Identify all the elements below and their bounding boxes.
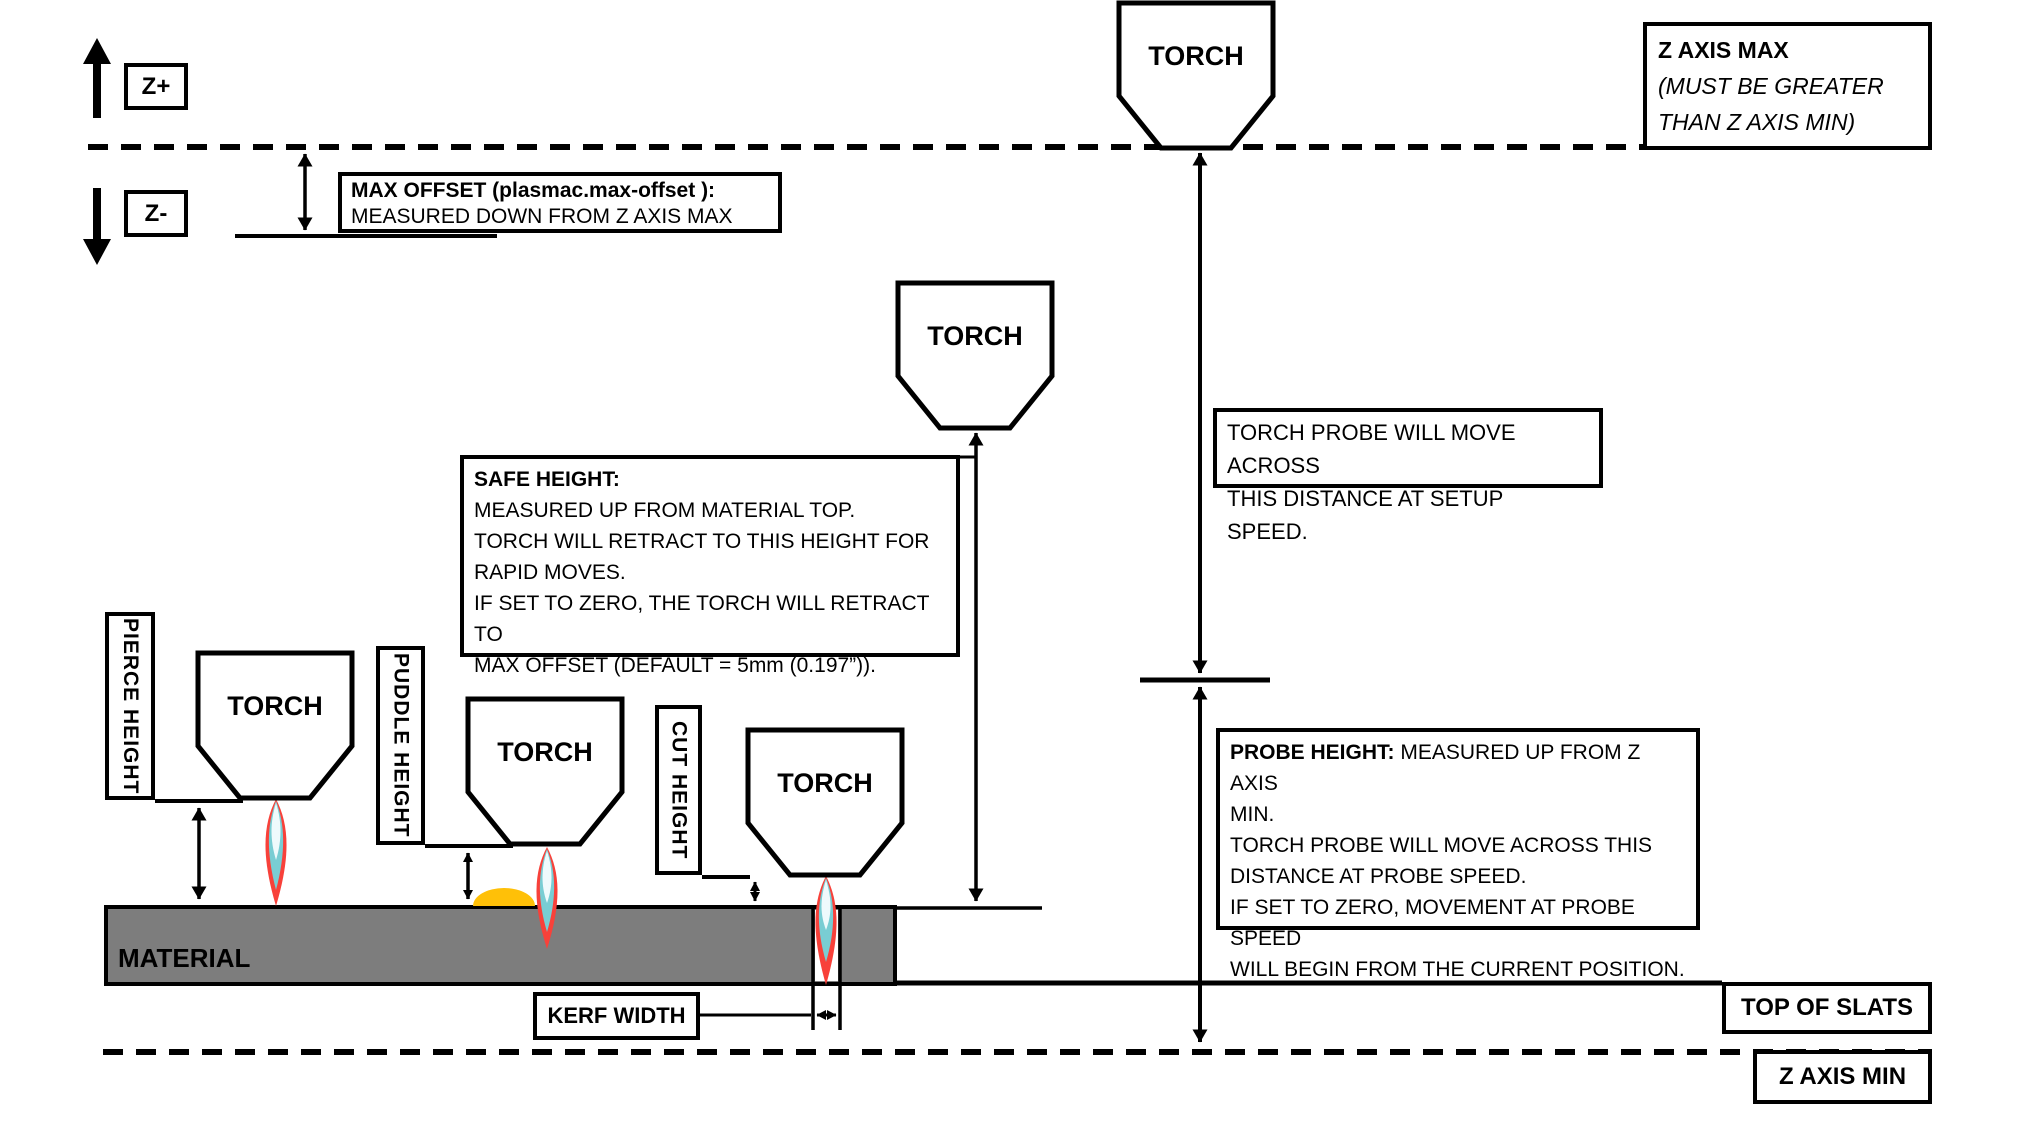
probe-height-box: PROBE HEIGHT: MEASURED UP FROM Z AXIS MI…: [1216, 728, 1700, 930]
kerf-width-box: KERF WIDTH: [533, 992, 700, 1040]
torch-label: TORCH: [468, 737, 622, 768]
torch-flame-icon: [265, 799, 286, 906]
max-offset-box: MAX OFFSET (plasmac.max-offset ): MEASUR…: [338, 172, 782, 233]
safe-height-box: SAFE HEIGHT: MEASURED UP FROM MATERIAL T…: [460, 455, 960, 657]
diagram-geometry: [0, 0, 2038, 1145]
max-offset-line: MEASURED DOWN FROM Z AXIS MAX: [351, 204, 769, 230]
cut-height-box: CUT HEIGHT: [655, 705, 702, 875]
probe-height-line: TORCH PROBE WILL MOVE ACROSS THIS: [1230, 830, 1686, 861]
probe-height-line: DISTANCE AT PROBE SPEED.: [1230, 861, 1686, 892]
z-axis-max-title: Z AXIS MAX: [1658, 32, 1917, 68]
safe-height-line: IF SET TO ZERO, THE TORCH WILL RETRACT T…: [474, 588, 946, 650]
z-axis-max-box: Z AXIS MAX (MUST BE GREATER THAN Z AXIS …: [1643, 22, 1932, 150]
top-of-slats-box: TOP OF SLATS: [1722, 982, 1932, 1034]
torch-probe-line: THIS DISTANCE AT SETUP SPEED.: [1227, 482, 1589, 548]
torch-label: TORCH: [198, 691, 352, 722]
safe-height-line: TORCH WILL RETRACT TO THIS HEIGHT FOR: [474, 526, 946, 557]
safe-height-line: MAX OFFSET (DEFAULT = 5mm (0.197”)).: [474, 650, 946, 681]
puddle-height-box: PUDDLE HEIGHT: [376, 646, 425, 845]
z-plus-box: Z+: [124, 63, 188, 110]
torch-body-safe: [898, 283, 1052, 428]
probe-height-line: WILL BEGIN FROM THE CURRENT POSITION.: [1230, 954, 1686, 985]
safe-height-line: MEASURED UP FROM MATERIAL TOP.: [474, 495, 946, 526]
z-axis-max-line: THAN Z AXIS MIN): [1658, 104, 1917, 140]
torch-body-cut: [748, 730, 902, 875]
z-axis-min-box: Z AXIS MIN: [1753, 1050, 1932, 1104]
probe-height-title: PROBE HEIGHT:: [1230, 741, 1395, 764]
torch-body-pierce: [198, 653, 352, 798]
torch-probe-line: TORCH PROBE WILL MOVE ACROSS: [1227, 416, 1589, 482]
probe-height-firstline: PROBE HEIGHT: MEASURED UP FROM Z AXIS: [1230, 737, 1686, 799]
puddle-height-label: PUDDLE HEIGHT: [389, 653, 413, 838]
pierce-height-label: PIERCE HEIGHT: [118, 618, 142, 794]
safe-height-line: RAPID MOVES.: [474, 557, 946, 588]
plasmac-height-diagram: TORCH TORCH TORCH TORCH TORCH Z+ Z- MAX …: [0, 0, 2038, 1145]
puddle-icon: [473, 888, 535, 906]
safe-height-title: SAFE HEIGHT:: [474, 464, 946, 495]
probe-height-line: IF SET TO ZERO, MOVEMENT AT PROBE SPEED: [1230, 892, 1686, 954]
z-plus-arrow-icon: [83, 38, 111, 118]
z-minus-box: Z-: [124, 190, 188, 237]
torch-label: TORCH: [1119, 41, 1273, 72]
torch-body-top: [1119, 3, 1273, 148]
max-offset-title: MAX OFFSET (plasmac.max-offset ):: [351, 178, 769, 204]
cut-height-label: CUT HEIGHT: [667, 721, 691, 859]
torch-probe-box: TORCH PROBE WILL MOVE ACROSS THIS DISTAN…: [1213, 408, 1603, 488]
z-axis-max-line: (MUST BE GREATER: [1658, 68, 1917, 104]
pierce-height-box: PIERCE HEIGHT: [105, 612, 155, 800]
torch-label: TORCH: [898, 321, 1052, 352]
probe-height-line: MIN.: [1230, 799, 1686, 830]
material-label: MATERIAL: [118, 943, 250, 974]
torch-label: TORCH: [748, 768, 902, 799]
torch-body-puddle: [468, 699, 622, 844]
z-minus-arrow-icon: [83, 188, 111, 265]
